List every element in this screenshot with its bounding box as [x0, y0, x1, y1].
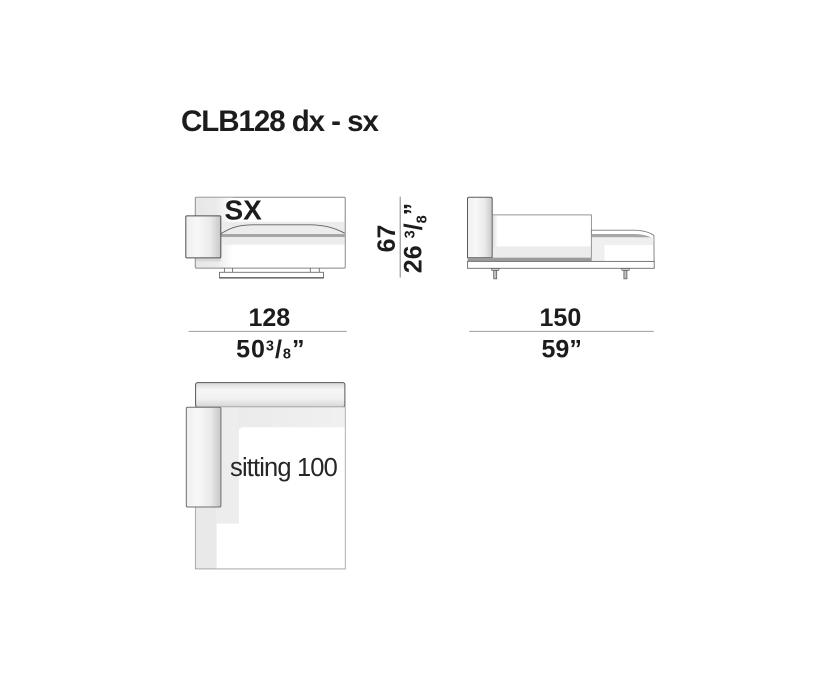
svg-text:150: 150 [540, 304, 582, 332]
svg-text:503/8”: 503/8” [236, 335, 305, 363]
svg-text:sitting 100: sitting 100 [230, 454, 338, 482]
svg-text:26 3/8”: 26 3/8” [400, 203, 431, 273]
svg-text:CLB128 dx - sx: CLB128 dx - sx [181, 105, 379, 138]
svg-text:67: 67 [373, 225, 401, 253]
svg-text:59”: 59” [542, 335, 582, 363]
svg-text:128: 128 [248, 304, 290, 332]
svg-text:SX: SX [225, 195, 263, 226]
